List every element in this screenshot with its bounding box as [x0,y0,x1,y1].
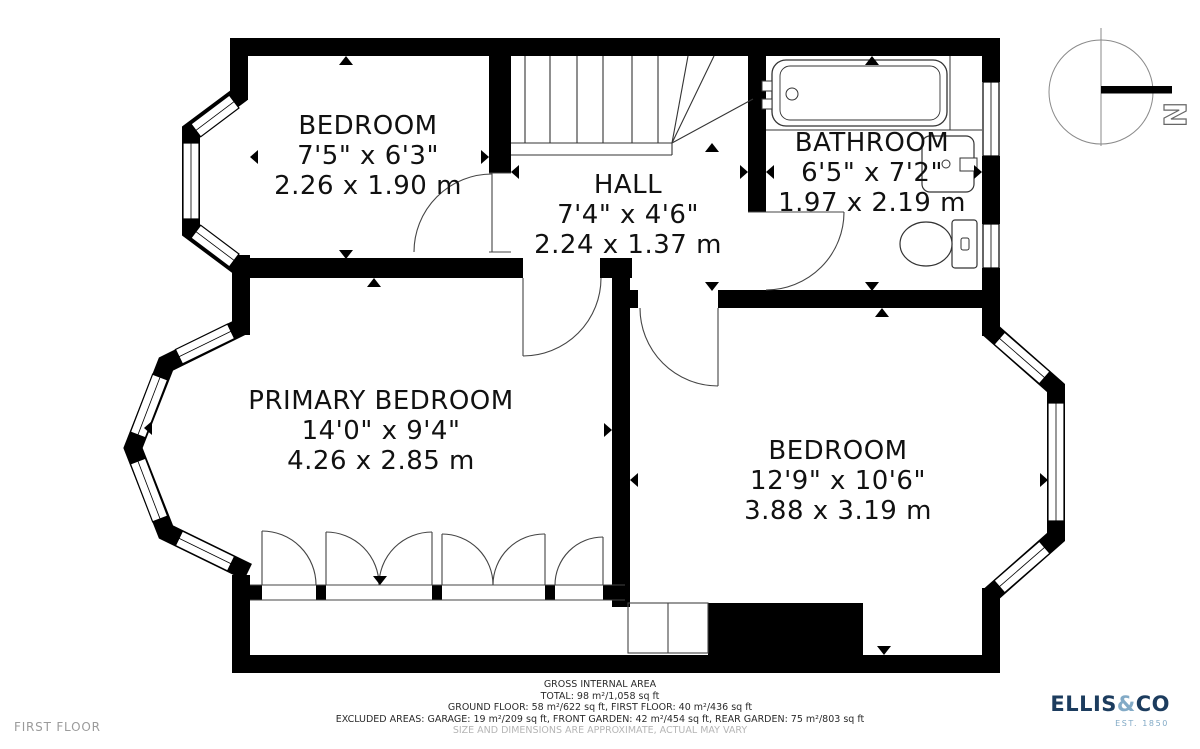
window-icon [994,332,1050,383]
agency-logo: ELLIS&CO EST. 1850 [1050,694,1170,734]
compass: N [1049,28,1191,146]
window-icon [983,224,999,268]
door-primary-bedroom [523,278,601,356]
window-icon [1048,403,1064,521]
bathtub-icon [762,60,947,126]
room-label-hall: HALL 7'4" x 4'6" 2.24 x 1.37 m [534,170,722,260]
wardrobe-door [262,531,316,585]
room-label-bathroom: BATHROOM 6'5" x 7'2" 1.97 x 2.19 m [778,128,966,218]
gross-internal-area-block: GROSS INTERNAL AREA TOTAL: 98 m²/1,058 s… [0,679,1200,737]
room-dims-metric: 2.26 x 1.90 m [274,171,462,201]
room-label-bedroom2: BEDROOM 12'9" x 10'6" 3.88 x 3.19 m [744,436,932,526]
window-icon [183,143,199,219]
gia-floors: GROUND FLOOR: 58 m²/622 sq ft, FIRST FLO… [0,702,1200,714]
gia-title: GROSS INTERNAL AREA [0,679,1200,691]
gia-total: TOTAL: 98 m²/1,058 sq ft [0,691,1200,703]
window-icon [983,82,999,156]
room-dims-imperial: 7'5" x 6'3" [274,141,462,171]
agency-logo-wordmark: ELLIS&CO [1050,694,1170,714]
window-icon [130,458,167,522]
room-dims-metric: 4.26 x 2.85 m [248,446,513,476]
window-icon [175,531,234,571]
toilet-icon [900,220,977,268]
floorplan-drawing: N [0,0,1200,749]
door-bathroom [766,212,844,290]
wardrobe-door [555,537,603,585]
room-name: PRIMARY BEDROOM [248,386,513,416]
room-dims-metric: 1.97 x 2.19 m [778,188,966,218]
bow-window-left [130,324,248,572]
room-dims-imperial: 14'0" x 9'4" [248,416,513,446]
gia-disclaimer: SIZE AND DIMENSIONS ARE APPROXIMATE, ACT… [0,725,1200,737]
logo-name-primary: ELLIS [1050,692,1117,716]
room-label-bedroom1: BEDROOM 7'5" x 6'3" 2.26 x 1.90 m [274,111,462,201]
room-dims-metric: 2.24 x 1.37 m [534,230,722,260]
room-dims-imperial: 7'4" x 4'6" [534,200,722,230]
room-dims-imperial: 6'5" x 7'2" [778,158,966,188]
compass-north-label: N [1156,102,1191,127]
gia-excluded: EXCLUDED AREAS: GARAGE: 19 m²/209 sq ft,… [0,714,1200,726]
door-bedroom2 [640,308,718,386]
room-name: BATHROOM [778,128,966,158]
bay-window-right [988,328,1064,597]
floorplan-page: N BEDROOM 7'5" x 6'3" 2.26 x 1.90 m HALL… [0,0,1200,749]
staircase [511,56,753,155]
room-name: BEDROOM [744,436,932,466]
bay-window-top-left [183,93,242,269]
room-label-primary-bedroom: PRIMARY BEDROOM 14'0" x 9'4" 4.26 x 2.85… [248,386,513,476]
logo-established: EST. 1850 [1050,714,1170,734]
wardrobe-door [442,534,545,585]
room-dims-metric: 3.88 x 3.19 m [744,496,932,526]
room-dims-imperial: 12'9" x 10'6" [744,466,932,496]
window-icon [994,541,1050,592]
cupboard-bedroom2 [628,603,708,653]
room-name: BEDROOM [274,111,462,141]
floor-label: FIRST FLOOR [14,720,101,734]
logo-ampersand: & [1117,692,1136,716]
logo-name-secondary: CO [1136,692,1170,716]
room-name: HALL [534,170,722,200]
